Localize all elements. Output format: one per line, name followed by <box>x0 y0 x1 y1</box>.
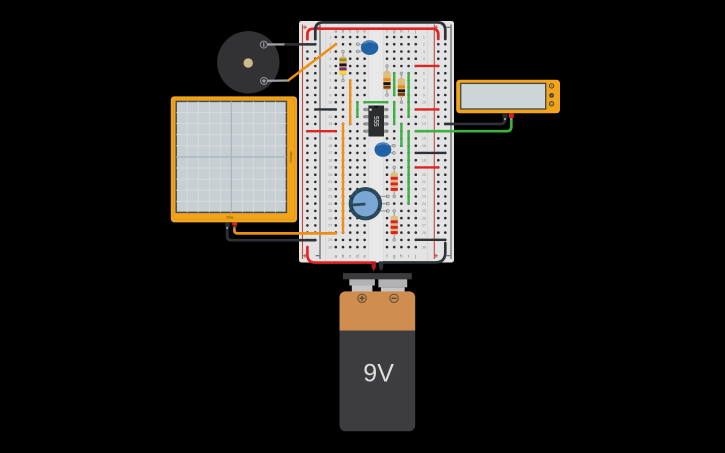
svg-text:27: 27 <box>422 224 426 228</box>
svg-text:29: 29 <box>328 238 332 242</box>
svg-text:30: 30 <box>328 245 332 249</box>
svg-text:23: 23 <box>422 195 426 199</box>
svg-text:15: 15 <box>328 137 332 141</box>
svg-text:2: 2 <box>423 43 425 47</box>
svg-text:18: 18 <box>328 159 332 163</box>
svg-text:1: 1 <box>329 35 331 39</box>
svg-text:28: 28 <box>422 231 426 235</box>
svg-text:7: 7 <box>423 79 425 83</box>
svg-text:9: 9 <box>329 93 331 97</box>
svg-text:Voltage: Voltage <box>289 151 293 162</box>
svg-text:9: 9 <box>423 93 425 97</box>
svg-text:24: 24 <box>422 202 426 206</box>
svg-text:16: 16 <box>422 144 426 148</box>
svg-text:6: 6 <box>423 72 425 76</box>
svg-text:10: 10 <box>422 101 426 105</box>
svg-text:i: i <box>408 254 409 259</box>
svg-text:26: 26 <box>422 216 426 220</box>
svg-text:V: V <box>551 94 553 98</box>
svg-text:A: A <box>551 84 553 88</box>
svg-text:7: 7 <box>329 79 331 83</box>
svg-text:21: 21 <box>422 180 426 184</box>
svg-text:22: 22 <box>422 187 426 191</box>
svg-text:20: 20 <box>422 173 426 177</box>
svg-text:18: 18 <box>422 159 426 163</box>
svg-text:15: 15 <box>422 137 426 141</box>
svg-text:24: 24 <box>328 202 332 206</box>
svg-text:12: 12 <box>328 115 332 119</box>
svg-text:17: 17 <box>328 151 332 155</box>
svg-text:4: 4 <box>329 57 331 61</box>
svg-text:10: 10 <box>328 101 332 105</box>
svg-text:j: j <box>414 254 416 259</box>
svg-text:1: 1 <box>423 35 425 39</box>
svg-text:13: 13 <box>328 122 332 126</box>
svg-text:13: 13 <box>422 122 426 126</box>
svg-text:8: 8 <box>329 86 331 90</box>
svg-text:9V: 9V <box>363 360 394 388</box>
svg-text:3: 3 <box>423 50 425 54</box>
svg-text:20: 20 <box>328 173 332 177</box>
svg-text:19: 19 <box>328 166 332 170</box>
svg-text:8: 8 <box>423 86 425 90</box>
svg-text:4: 4 <box>423 57 425 61</box>
svg-text:12: 12 <box>422 115 426 119</box>
svg-text:25: 25 <box>328 209 332 213</box>
svg-text:22: 22 <box>328 187 332 191</box>
svg-text:27: 27 <box>328 224 332 228</box>
svg-text:26: 26 <box>328 216 332 220</box>
svg-text:Time: Time <box>226 215 234 219</box>
svg-text:5: 5 <box>329 64 331 68</box>
svg-text:6: 6 <box>329 72 331 76</box>
svg-text:2: 2 <box>329 43 331 47</box>
svg-text:21: 21 <box>328 180 332 184</box>
svg-text:16: 16 <box>328 144 332 148</box>
svg-text:25: 25 <box>422 209 426 213</box>
svg-text:30: 30 <box>422 245 426 249</box>
svg-text:23: 23 <box>328 195 332 199</box>
